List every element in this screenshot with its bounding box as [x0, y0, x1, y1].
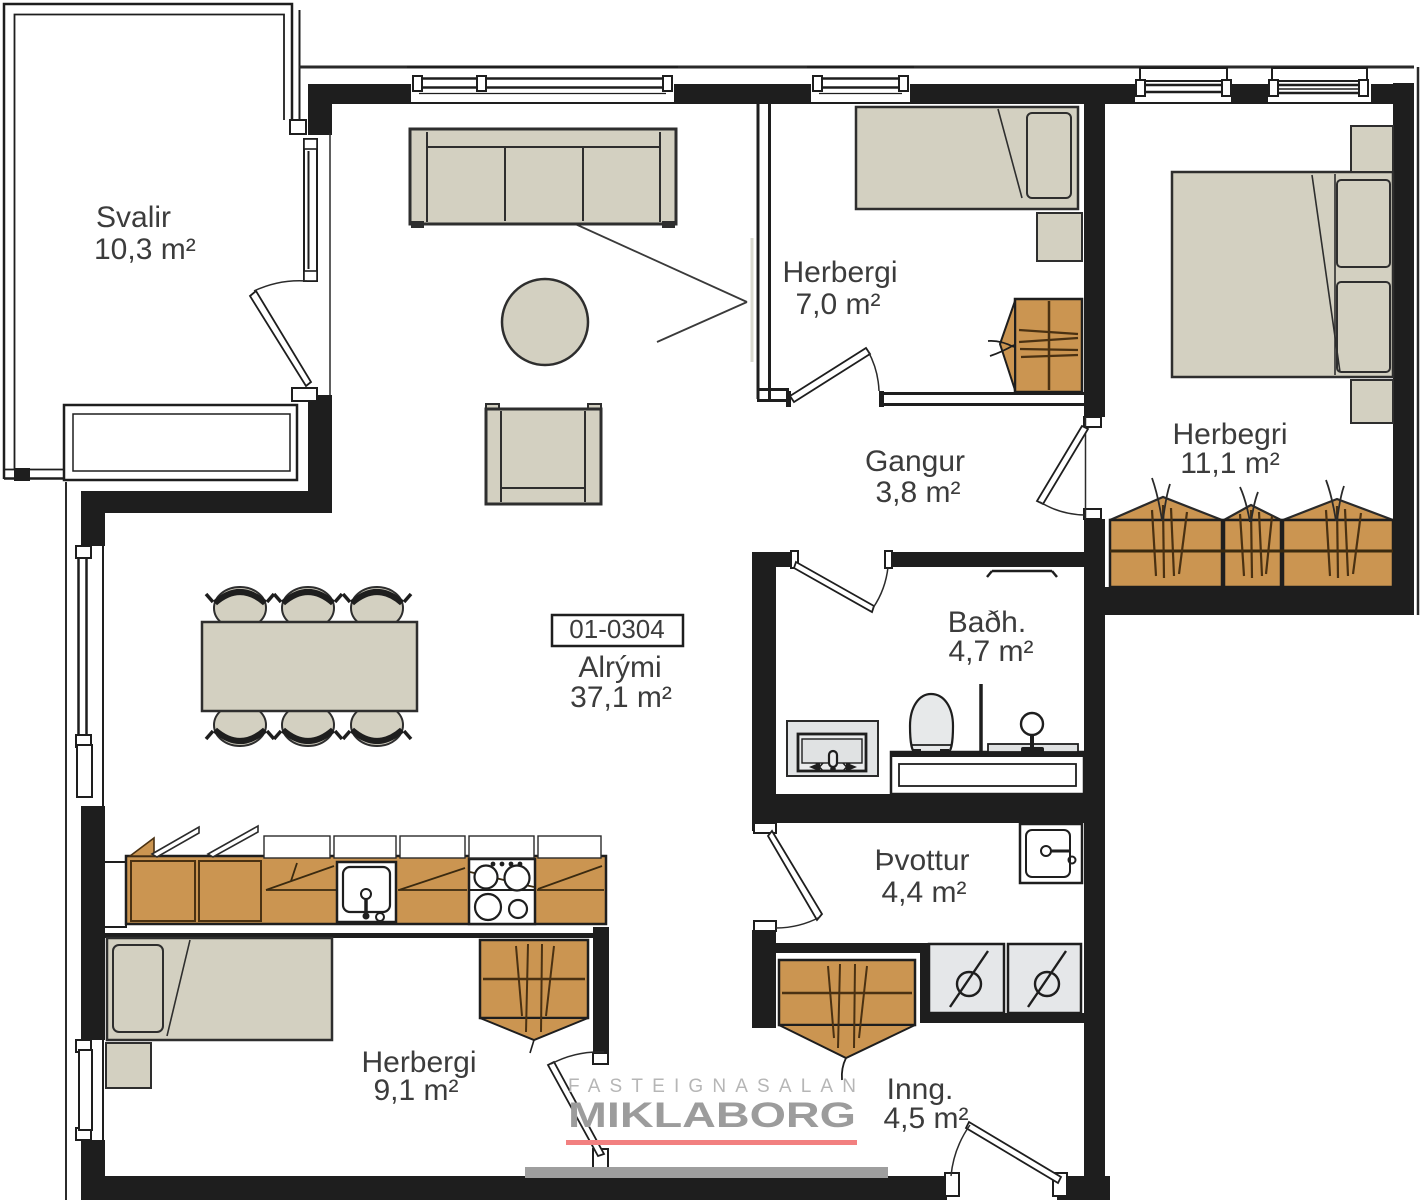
- svg-text:Þvottur: Þvottur: [874, 844, 969, 877]
- svg-text:9,1 m²: 9,1 m²: [373, 1074, 458, 1107]
- svg-text:Gangur: Gangur: [865, 445, 965, 478]
- svg-text:4,4 m²: 4,4 m²: [881, 876, 966, 909]
- svg-text:4,7 m²: 4,7 m²: [948, 635, 1033, 668]
- svg-text:7,0 m²: 7,0 m²: [795, 288, 880, 321]
- svg-text:MIKLABORG: MIKLABORG: [568, 1096, 856, 1135]
- svg-text:37,1 m²: 37,1 m²: [570, 681, 672, 714]
- svg-text:Herbergi: Herbergi: [782, 256, 897, 289]
- svg-text:10,3 m²: 10,3 m²: [94, 233, 196, 266]
- svg-text:4,5 m²: 4,5 m²: [883, 1102, 968, 1135]
- svg-text:Svalir: Svalir: [96, 201, 171, 234]
- svg-text:11,1 m²: 11,1 m²: [1180, 447, 1279, 480]
- svg-text:3,8 m²: 3,8 m²: [875, 476, 960, 509]
- svg-text:Alrými: Alrými: [578, 651, 661, 684]
- svg-text:01-0304: 01-0304: [569, 614, 664, 644]
